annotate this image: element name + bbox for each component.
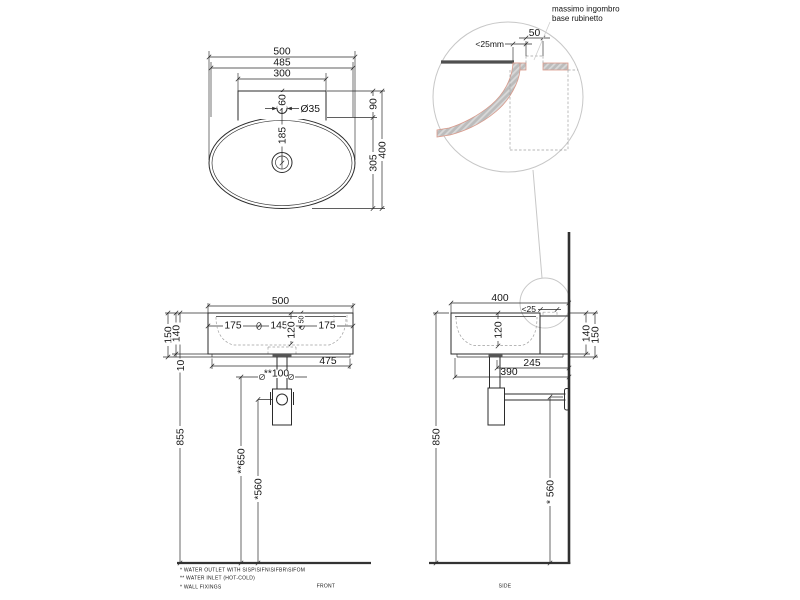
dim-inlet-height: **650 <box>237 448 248 473</box>
dim-total-height: 855 <box>176 428 187 445</box>
trap-body-side <box>488 388 505 425</box>
dim-fixing-right: 175 <box>318 321 335 332</box>
dim-front-width: 500 <box>272 296 289 307</box>
tap-base-side <box>543 312 557 316</box>
detail-note-line1: massimo ingombro <box>552 5 620 14</box>
basin-wall-section <box>437 63 520 137</box>
note-water-outlet: * WATER OUTLET WITH SISP\SIFN\SIFBR\SIFO… <box>180 568 305 574</box>
front-view-label: FRONT <box>317 584 335 590</box>
note-water-inlet: ** WATER INLET (HOT-COLD) <box>180 576 255 582</box>
dim-outlet-height-side: * 560 <box>546 480 557 504</box>
washbasin-technical-drawing: 500 485 300 Ø35 60 185 90 305 400 50 <25… <box>0 0 800 600</box>
dim-inner-depth-front: 120 <box>287 321 298 338</box>
footnotes: * WATER OUTLET WITH SISP\SIFN\SIFBR\SIFO… <box>180 568 305 591</box>
dim-drain-to-wall: 245 <box>523 358 540 369</box>
dim-tap-base-width: 50 <box>529 28 541 39</box>
dim-overall-depth: 400 <box>378 141 389 158</box>
note-wall-fixings: * WALL FIXINGS <box>180 585 222 591</box>
basin-front-outline <box>208 313 353 354</box>
side-view: 400 <25 245 390 120 140 150 850 * 560 SI… <box>429 232 602 590</box>
dim-ledge-depth: 90 <box>369 98 380 110</box>
basin-side-outline <box>451 313 568 354</box>
dim-fixing-left: 175 <box>224 321 241 332</box>
trap-neck <box>271 357 294 404</box>
detail-note-line2: base rubinetto <box>552 14 603 23</box>
trap-union-nut <box>277 394 288 405</box>
dim-faucet-diameter: Ø35 <box>301 104 321 115</box>
dim-lip-height: 10 <box>176 360 187 372</box>
detail-leader-line <box>533 170 542 278</box>
dim-outlet-height-front: *560 <box>254 478 265 499</box>
dim-inner-depth-side: 120 <box>494 321 505 338</box>
dim-rim-height-side: 150 <box>591 326 602 343</box>
dim-drain-offset: 185 <box>278 127 289 144</box>
dim-faucet-offset: 60 <box>278 94 289 106</box>
dim-fixing-top-offset: 50 <box>299 316 306 324</box>
side-view-label: SIDE <box>499 584 512 590</box>
dim-base-width: 475 <box>319 356 336 367</box>
dim-total-height-side: 850 <box>432 428 443 445</box>
dim-side-depth: 400 <box>491 293 508 304</box>
front-view: 500 175 145 175 475 **100 150 140 10 120… <box>163 296 371 590</box>
dim-rim-width: 485 <box>273 58 290 69</box>
dim-front-to-wall: 390 <box>500 367 517 378</box>
drain-flange <box>273 354 292 357</box>
deck-section-right <box>543 63 568 70</box>
dim-ledge-width: 300 <box>273 69 290 80</box>
drawing-canvas: 500 485 300 Ø35 60 185 90 305 400 50 <25… <box>0 0 800 600</box>
dim-tap-clearance: <25mm <box>475 39 504 49</box>
dim-fixing-spacing: 145 <box>270 321 287 332</box>
top-view: 500 485 300 Ø35 60 185 90 305 400 <box>207 47 389 211</box>
dim-body-height: 140 <box>172 325 183 342</box>
dim-inlet-spacing: **100 <box>264 368 289 379</box>
dim-tap-clearance-side: <25 <box>522 304 537 314</box>
detail-view: 50 <25mm massimo ingombro base rubinetto <box>433 5 620 279</box>
dim-overall-width: 500 <box>273 47 290 58</box>
